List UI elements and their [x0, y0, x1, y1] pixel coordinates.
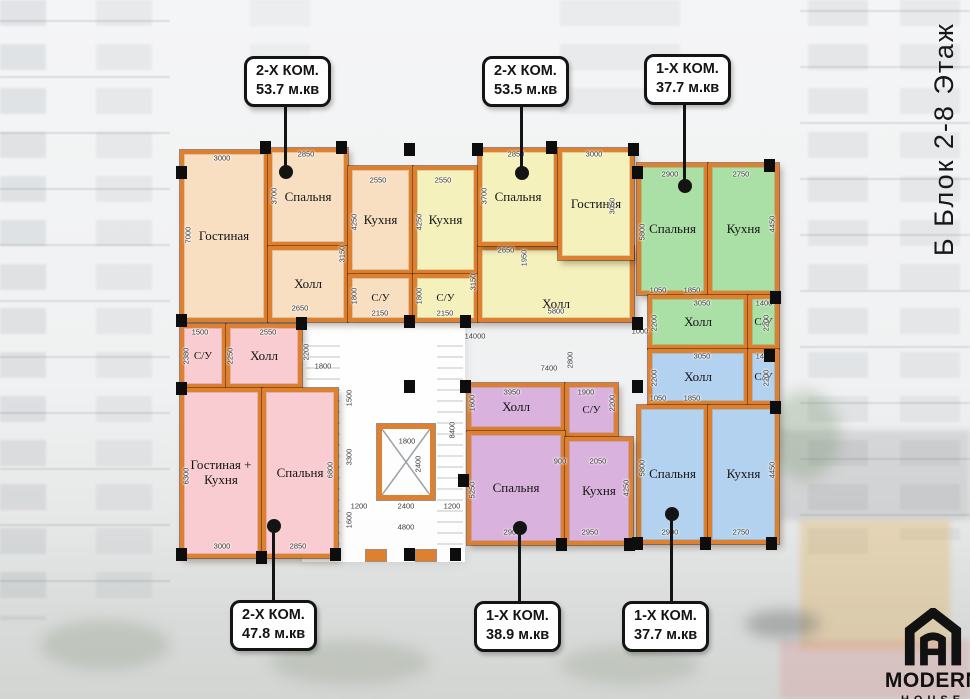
dim-label: 1800	[415, 288, 424, 305]
column-marker	[404, 315, 415, 328]
dim-label: 3950	[504, 388, 521, 397]
dim-label: 8400	[448, 422, 457, 439]
dim-label: 2200	[650, 315, 659, 332]
callout-line-6	[670, 516, 673, 601]
column-marker	[460, 380, 471, 393]
column-marker	[632, 317, 643, 330]
dim-label: 1500	[192, 328, 209, 337]
callout-area: 53.5 м.кв	[494, 81, 557, 100]
column-marker	[176, 548, 187, 561]
dim-label: 2400	[398, 502, 415, 511]
room-label: С/У	[580, 404, 602, 417]
dim-label: 2380	[182, 348, 191, 365]
room-living-kitchen-a6: Гостиная + Кухня	[180, 388, 262, 558]
callout-area: 53.7 м.кв	[256, 81, 319, 100]
brand-name: MODERN	[873, 669, 970, 693]
dim-label: 1050	[650, 286, 667, 295]
dim-label: 2550	[370, 176, 387, 185]
dim-label: 6300	[182, 468, 191, 485]
dim-label: 3300	[345, 449, 354, 466]
dim-label: 1800	[399, 437, 416, 446]
dim-label: 3050	[694, 352, 711, 361]
dim-label: 1900	[578, 388, 595, 397]
dim-label: 1950	[520, 250, 529, 267]
dim-label: 5800	[548, 307, 565, 316]
callout-apt-bottom-left: 2-Х КОМ. 47.8 м.кв	[230, 600, 317, 651]
room-living-a2: Гостиная	[558, 148, 634, 260]
dim-label: 1600	[468, 395, 477, 412]
callout-apt-bottom-middle: 1-Х КОМ. 38.9 м.кв	[474, 601, 561, 652]
dim-label: 2550	[435, 176, 452, 185]
dim-label: 1800	[315, 362, 332, 371]
house-monogram-icon	[902, 608, 964, 666]
callout-line-3	[683, 98, 686, 186]
room-label: Гостиная	[197, 229, 251, 244]
column-marker	[770, 291, 781, 304]
column-marker	[472, 143, 483, 156]
room-label: Холл	[500, 400, 532, 415]
stairs-right	[437, 345, 463, 550]
floorplan-page: Гостиная Спальня Холл Кухня С/У Кухня С/…	[0, 0, 970, 699]
callout-apt-bottom-right: 1-Х КОМ. 37.7 м.кв	[622, 601, 709, 652]
dim-label: 2800	[566, 352, 575, 369]
elevator-shaft	[377, 424, 435, 500]
bg-car	[745, 610, 820, 638]
room-label: Кухня	[427, 213, 465, 228]
dim-label: 5800	[638, 224, 647, 241]
column-marker	[404, 380, 415, 393]
room-label: С/У	[192, 350, 214, 363]
callout-dot-3	[678, 179, 692, 193]
dim-label: 2750	[733, 170, 750, 179]
callout-type: 2-Х КОМ.	[242, 606, 305, 625]
dim-label: 900	[554, 457, 567, 466]
dim-label: 2850	[298, 150, 315, 159]
dim-label: 2550	[260, 328, 277, 337]
callout-dot-6	[665, 507, 679, 521]
dim-label: 2200	[762, 370, 771, 387]
callout-dot-4	[267, 519, 281, 533]
room-label: Спальня	[647, 222, 698, 237]
dim-label: 2650	[498, 246, 515, 255]
column-marker	[764, 159, 775, 172]
dim-label: 4250	[622, 480, 631, 497]
column-marker	[336, 141, 347, 154]
callout-line-4	[272, 527, 275, 600]
callout-area: 47.8 м.кв	[242, 625, 305, 644]
room-label: Спальня	[493, 190, 544, 205]
dim-label: 6800	[326, 462, 335, 479]
callout-dot-5	[513, 521, 527, 535]
room-label: Спальня	[647, 467, 698, 482]
callout-type: 1-Х КОМ.	[634, 607, 697, 626]
dim-label: 2200	[650, 370, 659, 387]
column-marker	[458, 474, 469, 487]
room-label: Гостиная + Кухня	[188, 458, 254, 488]
dim-label: 1800	[350, 288, 359, 305]
dim-label: 1600	[345, 512, 354, 529]
callout-apt-top-left: 2-Х КОМ. 53.7 м.кв	[244, 56, 331, 107]
dim-label: 2200	[302, 344, 311, 361]
callout-line-2	[520, 98, 523, 173]
column-marker	[450, 548, 461, 561]
dim-label: 2850	[290, 542, 307, 551]
dim-label: 2150	[372, 309, 389, 318]
callout-line-1	[284, 100, 287, 172]
room-label: Холл	[292, 277, 324, 292]
column-marker	[632, 166, 643, 179]
room-bedroom-a3: Спальня	[637, 163, 708, 295]
callout-area: 37.7 м.кв	[634, 626, 697, 645]
dim-label: 3700	[270, 188, 279, 205]
dim-label: 1850	[684, 394, 701, 403]
dim-label: 1850	[684, 286, 701, 295]
room-label: Кухня	[725, 222, 763, 237]
room-label: Холл	[682, 370, 714, 385]
dim-label: 2150	[437, 309, 454, 318]
callout-type: 1-Х КОМ.	[656, 60, 719, 79]
dim-label: 2200	[608, 395, 617, 412]
room-label: Спальня	[491, 481, 542, 496]
bg-bush-1	[40, 620, 170, 670]
dim-label: 3000	[586, 150, 603, 159]
callout-type: 1-Х КОМ.	[486, 607, 549, 626]
dim-label: 2400	[414, 456, 423, 473]
block-floor-title: Б Блок 2-8 Этаж	[929, 22, 960, 256]
column-marker	[632, 380, 643, 393]
column-marker	[764, 349, 775, 362]
column-marker	[404, 548, 415, 561]
column-marker	[628, 143, 639, 156]
column-marker	[700, 537, 711, 550]
room-bedroom-a2: Спальня	[478, 148, 558, 246]
column-marker	[556, 538, 567, 551]
column-marker	[770, 401, 781, 414]
room-label: Кухня	[580, 484, 618, 499]
room-living-a1: Гостиная	[180, 150, 268, 322]
column-marker	[176, 314, 187, 327]
dim-label: 2650	[292, 304, 309, 313]
callout-dot-2	[515, 166, 529, 180]
callout-area: 37.7 м.кв	[656, 79, 719, 98]
dim-label: 7400	[541, 364, 558, 373]
callout-apt-top-middle: 2-Х КОМ. 53.5 м.кв	[482, 56, 569, 107]
column-marker	[176, 382, 187, 395]
dim-label: 3150	[338, 246, 347, 263]
dim-label: 2750	[733, 528, 750, 537]
dim-label: 7000	[184, 227, 193, 244]
dim-label: 2950	[582, 528, 599, 537]
column-marker	[176, 166, 187, 179]
dim-label: 4450	[768, 216, 777, 233]
dim-label: 1200	[351, 502, 368, 511]
dim-label: 14000	[465, 332, 486, 341]
room-label: С/У	[369, 292, 391, 305]
dim-label: 5800	[638, 460, 647, 477]
column-marker	[624, 538, 635, 551]
dim-label: 1500	[345, 390, 354, 407]
room-label: Кухня	[725, 467, 763, 482]
brand-sub: HOUSE	[873, 694, 970, 699]
dim-label: 2250	[226, 348, 235, 365]
dim-label: 2200	[762, 315, 771, 332]
dim-label: 1200	[444, 502, 461, 511]
dim-label: 4250	[350, 214, 359, 231]
dim-label: 3700	[480, 188, 489, 205]
dim-label: 2050	[590, 457, 607, 466]
entry-stub	[366, 550, 386, 561]
room-label: Холл	[682, 315, 714, 330]
callout-line-5	[518, 529, 521, 601]
column-marker	[260, 141, 271, 154]
column-marker	[766, 537, 777, 550]
bg-balconies-left	[0, 20, 170, 600]
callout-dot-1	[279, 165, 293, 179]
column-marker	[330, 548, 341, 561]
dim-label: 4450	[768, 462, 777, 479]
room-label: Кухня	[362, 213, 400, 228]
room-label: Холл	[248, 349, 280, 364]
room-label: С/У	[434, 292, 456, 305]
column-marker	[460, 315, 471, 328]
callout-type: 2-Х КОМ.	[256, 62, 319, 81]
room-label: Спальня	[283, 190, 334, 205]
column-marker	[546, 141, 557, 154]
dim-label: 1050	[650, 394, 667, 403]
dim-label: 3000	[214, 154, 231, 163]
column-marker	[296, 317, 307, 330]
dim-label: 3050	[694, 299, 711, 308]
brand-logo: MODERN HOUSE	[873, 608, 970, 699]
dim-label: 4800	[398, 523, 415, 532]
entry-stub	[416, 550, 436, 561]
dim-label: 2900	[662, 170, 679, 179]
column-marker	[256, 551, 267, 564]
room-bedroom-a1: Спальня	[268, 148, 348, 246]
room-label: Спальня	[275, 466, 326, 481]
column-marker	[404, 143, 415, 156]
callout-type: 2-Х КОМ.	[494, 62, 557, 81]
callout-apt-top-right: 1-Х КОМ. 37.7 м.кв	[644, 54, 731, 105]
dim-label: 3050	[608, 198, 617, 215]
dim-label: 4250	[415, 214, 424, 231]
dim-label: 3000	[214, 542, 231, 551]
callout-area: 38.9 м.кв	[486, 626, 549, 645]
dim-label: 3150	[469, 274, 478, 291]
